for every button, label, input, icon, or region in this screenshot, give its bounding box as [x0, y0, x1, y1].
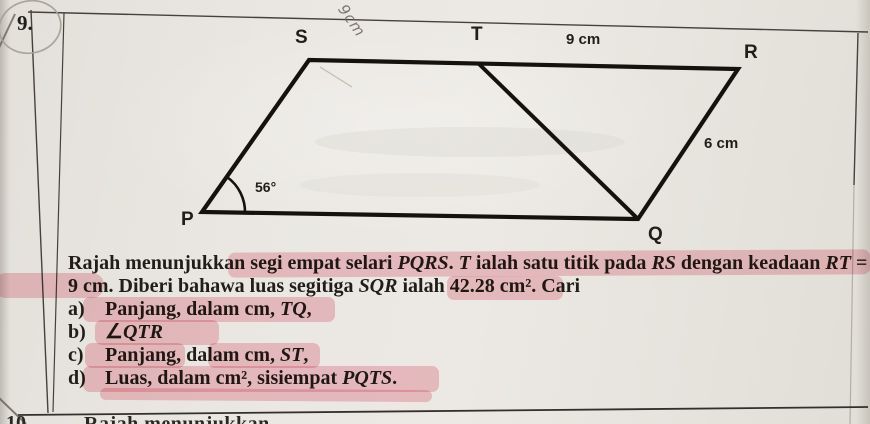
statement-text: =	[851, 252, 867, 274]
vertex-label-r: R	[744, 42, 758, 64]
table-right-border	[854, 33, 858, 185]
item-c-text: Panjang, dalam cm,	[105, 344, 280, 366]
scan-smudge	[315, 127, 625, 157]
problem-statement: Rajah menunjukkan segi empat selari PQRS…	[68, 252, 870, 390]
next-question-number: 10	[6, 412, 26, 424]
vertex-label-p: P	[181, 209, 194, 231]
dimension-label-6cm: 6 cm	[704, 135, 738, 152]
vertex-label-q: Q	[648, 224, 663, 246]
angle-arc-at-p	[227, 177, 245, 213]
var-st: ST	[280, 344, 303, 366]
vertex-label-t: T	[471, 24, 483, 46]
table-column-separator	[53, 13, 64, 412]
statement-text: 9 cm. Diberi bahawa luas segitiga	[68, 275, 359, 297]
item-b: b)∠QTR	[68, 321, 870, 344]
var-t: T	[459, 252, 471, 274]
item-a-text: ,	[307, 298, 312, 320]
item-b-label: b)	[68, 321, 105, 344]
item-a: a)Panjang, dalam cm, TQ,	[68, 298, 870, 321]
var-rt: RT	[825, 252, 851, 274]
item-d-text: Luas, dalam cm², sisiempat	[105, 367, 342, 389]
table-left-border	[31, 10, 48, 413]
table-top-border	[28, 12, 868, 32]
statement-text: ialah satu titik pada	[471, 252, 652, 274]
vertex-label-s: S	[295, 27, 308, 49]
statement-text: .	[449, 252, 459, 274]
var-rs: RS	[651, 252, 675, 274]
next-question-partial-text: Rajah menunjukkan	[84, 413, 270, 424]
angle-symbol: ∠	[105, 321, 123, 343]
item-d-label: d)	[68, 367, 105, 390]
statement-line-2: 9 cm. Diberi bahawa luas segitiga SQR ia…	[68, 275, 870, 298]
item-c-text: ,	[303, 344, 308, 366]
pencil-mark	[320, 67, 352, 87]
question-number: 9.	[17, 11, 33, 36]
item-a-label: a)	[68, 298, 105, 321]
statement-text: ialah 42.28 cm². Cari	[397, 275, 580, 297]
item-c-label: c)	[68, 344, 105, 367]
item-c: c)Panjang, dalam cm, ST,	[68, 344, 870, 367]
item-d-text: .	[392, 367, 397, 389]
statement-line-1: Rajah menunjukkan segi empat selari PQRS…	[68, 252, 870, 275]
angle-label-56: 56°	[255, 179, 276, 195]
var-tq: TQ	[280, 298, 307, 320]
var-pqrs: PQRS	[397, 252, 448, 274]
var-sqr: SQR	[359, 275, 398, 297]
statement-text: Rajah menunjukkan segi empat selari	[68, 252, 397, 274]
statement-text: dengan keadaan	[676, 252, 826, 274]
item-d: d)Luas, dalam cm², sisiempat PQTS.	[68, 367, 870, 390]
var-qtr: QTR	[123, 321, 163, 343]
worksheet-page: 9. 9cm S T 9 cm R 6 cm 56° P Q Rajah men…	[0, 0, 870, 424]
dimension-label-9cm: 9 cm	[566, 31, 600, 48]
scan-smudge	[300, 173, 540, 197]
item-a-text: Panjang, dalam cm,	[105, 298, 280, 320]
var-pqts: PQTS	[342, 367, 392, 389]
